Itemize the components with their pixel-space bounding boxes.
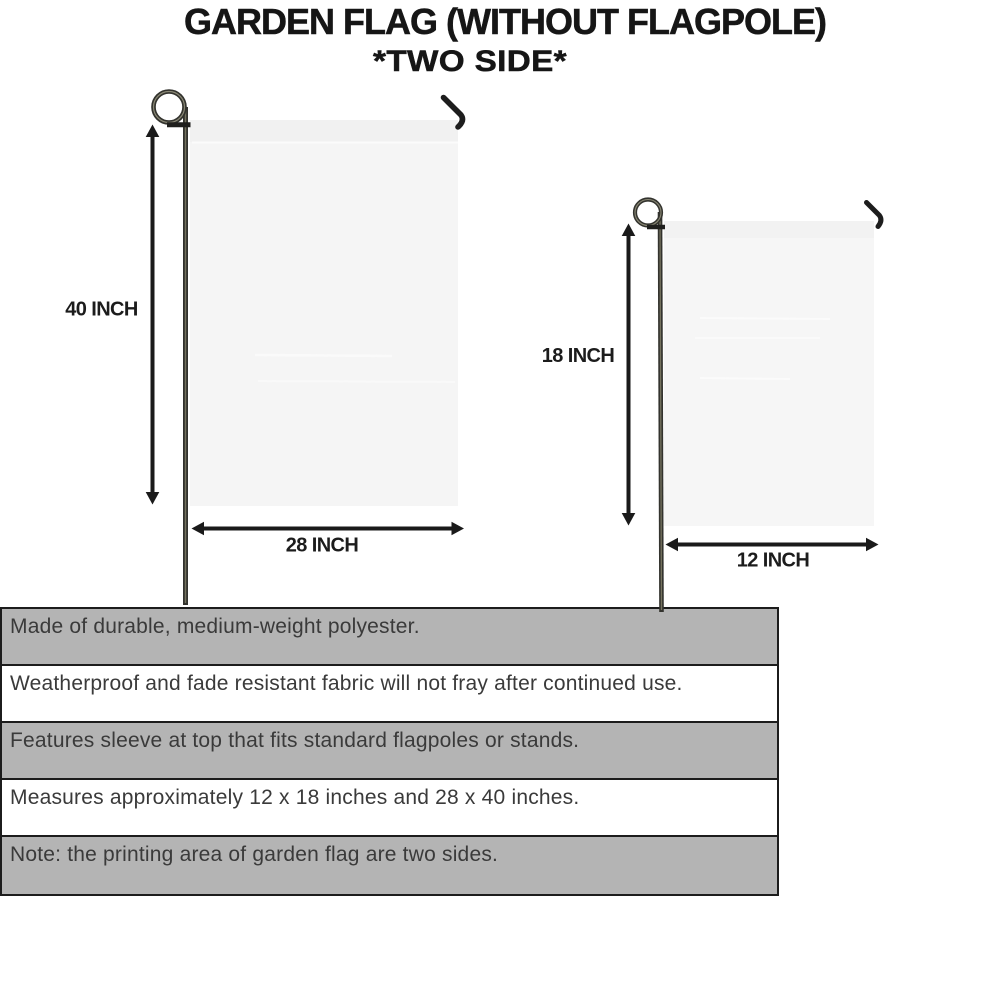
svg-text:40 INCH: 40 INCH: [65, 299, 138, 321]
svg-text:28 INCH: 28 INCH: [286, 535, 359, 557]
svg-text:18 INCH: 18 INCH: [542, 345, 615, 367]
svg-text:12 INCH: 12 INCH: [737, 550, 810, 572]
